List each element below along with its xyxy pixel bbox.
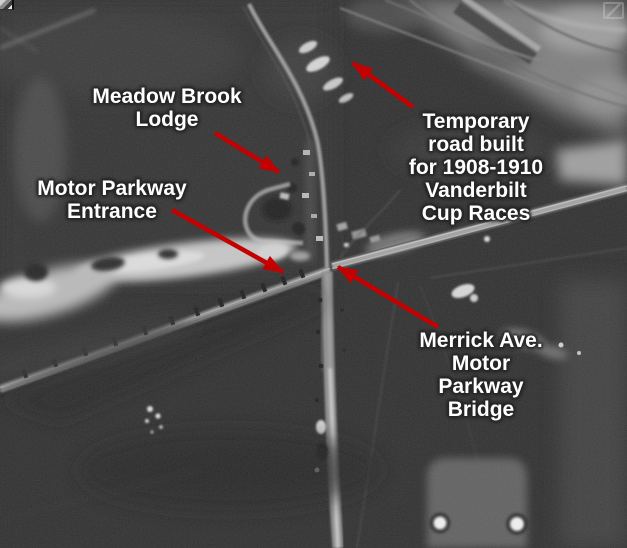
aerial-photograph [0,0,627,548]
zoom-overlay-icon [603,2,624,19]
image-artifact-icon [0,0,14,10]
film-grain-overlay [0,0,627,548]
annotated-aerial-photo: Meadow Brook Lodge Motor Parkway Entranc… [0,0,627,548]
